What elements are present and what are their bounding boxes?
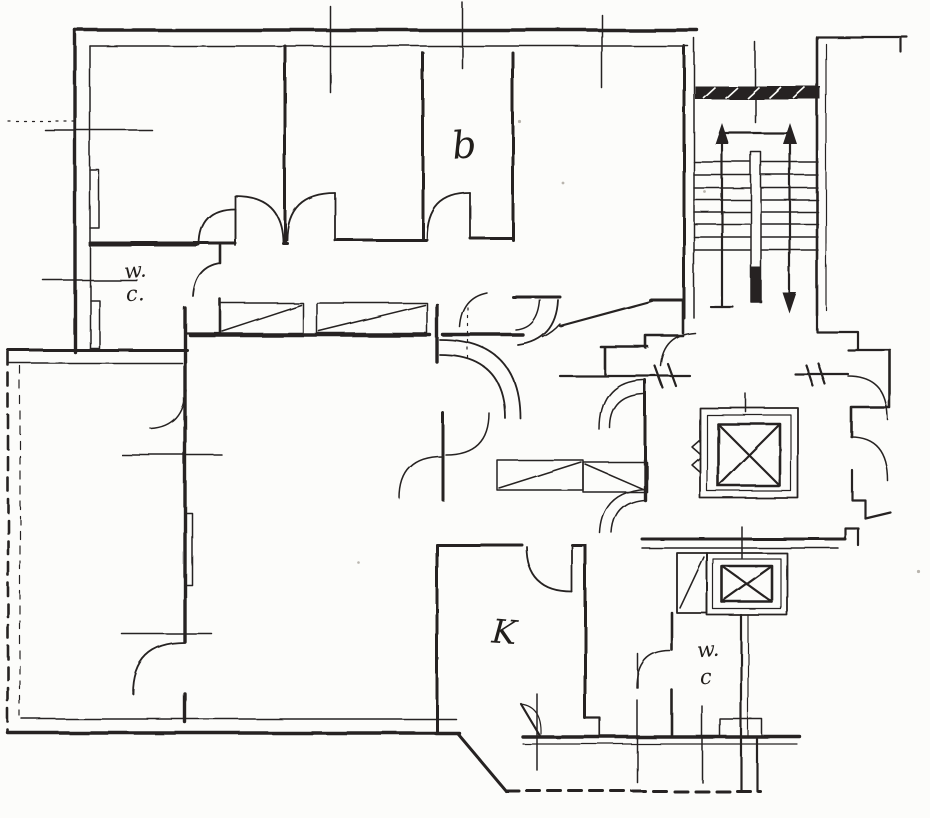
room-label-wc-lower-line1: w. — [696, 637, 720, 663]
door-swing-arc — [427, 193, 470, 238]
floor-plan-drawing: b w. c. K w. c — [0, 0, 930, 818]
bay-chamfer-wall — [458, 734, 506, 791]
closet-diagonal — [499, 462, 581, 488]
door-swing-arc — [851, 437, 888, 481]
wc-upper-room — [90, 209, 235, 335]
stair-divider-fill — [751, 267, 761, 302]
entry-doors — [560, 363, 888, 430]
elevator-x-mark — [718, 424, 780, 486]
window-marks — [8, 2, 755, 782]
living-room-wall — [122, 308, 222, 722]
staircase — [694, 38, 826, 315]
elevator-shaft-outer — [700, 408, 798, 498]
arrow-down-head — [783, 293, 797, 314]
room-label-kitchen: K — [490, 611, 521, 652]
door-swing-arc — [287, 193, 335, 240]
door-swing-arc — [637, 651, 670, 688]
door-swing-arc — [518, 300, 558, 345]
kitchen-wall-jog — [585, 718, 600, 737]
door-swing-arc — [848, 376, 888, 420]
left-wall-pilaster — [90, 170, 99, 228]
door-swing-arc — [460, 293, 487, 327]
elevator-main — [692, 394, 798, 498]
elevator-secondary — [677, 553, 787, 615]
room-label-wc-upper-line1: w. — [123, 257, 148, 283]
landing-step-wall — [845, 528, 858, 545]
corridor — [190, 303, 523, 362]
anteroom — [400, 340, 647, 533]
door-swing-arc — [612, 500, 645, 533]
door-swing-arc — [446, 413, 489, 455]
top-rooms-walls — [90, 38, 694, 374]
closet-diagonal — [319, 305, 425, 331]
neighbor-wall — [852, 350, 890, 437]
elevator-door-chevrons — [692, 440, 700, 472]
door-swing-arc — [400, 457, 443, 499]
kitchen — [437, 545, 600, 737]
landing-right-wall — [817, 315, 858, 350]
door-swing-arc — [610, 394, 643, 428]
left-wall-pilaster — [90, 300, 99, 348]
room-label-wc-lower-line2: c — [699, 665, 713, 690]
door-leaf-diagonal — [865, 512, 890, 518]
elevator-x-mark — [722, 566, 772, 602]
door-swing-arc — [600, 489, 645, 533]
door-swing-arc — [516, 300, 540, 330]
double-door-arc — [440, 340, 520, 418]
room-label-bedroom: b — [450, 122, 478, 168]
door-swing-arc — [661, 333, 695, 366]
door-swing-arc — [133, 643, 185, 694]
door-swing-arc — [151, 390, 186, 429]
room-label-wc-upper-line2: c. — [125, 281, 145, 306]
door-swing-arc — [527, 547, 572, 592]
door-swing-arc — [600, 380, 643, 430]
floor-plan-sketch: b w. c. K w. c — [0, 0, 930, 818]
door-swing-arc — [199, 209, 235, 245]
neighbor-wall — [852, 470, 865, 518]
duct-diagonal — [680, 557, 704, 608]
door-swing-arc — [235, 196, 283, 243]
stair-landing — [642, 315, 890, 548]
room-doors — [235, 193, 652, 345]
door-leaf-diagonal — [560, 301, 652, 326]
closet-diagonal — [222, 305, 301, 331]
closet-diagonal — [585, 464, 645, 490]
double-door-arc — [440, 355, 505, 418]
door-swing-arc — [193, 263, 220, 296]
